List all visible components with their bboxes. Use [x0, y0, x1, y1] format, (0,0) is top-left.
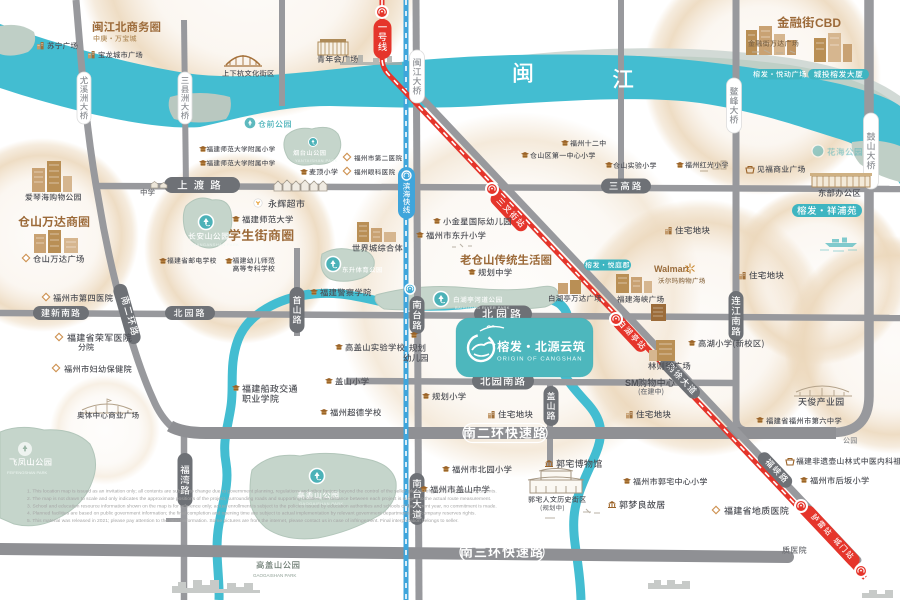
svg-text:SM: SM: [625, 378, 639, 388]
svg-text:BAIHUTING RIVER PARK: BAIHUTING RIVER PARK: [455, 305, 510, 310]
svg-text:2. The map is not drawn to sca: 2. The map is not drawn to scale and onl…: [27, 496, 491, 502]
svg-text:5. This material was released: 5. This material was released in 2021; p…: [27, 518, 459, 524]
svg-text:GAOGAISHAN PARK: GAOGAISHAN PARK: [253, 573, 296, 578]
svg-text:ORIGIN OF CANGSHAN: ORIGIN OF CANGSHAN: [497, 357, 583, 363]
svg-text:FEIFENGSHAN PARK: FEIFENGSHAN PARK: [7, 470, 47, 475]
svg-text:CHANGANSHAN PARK: CHANGANSHAN PARK: [190, 242, 239, 247]
svg-text:Walmart: Walmart: [654, 264, 689, 274]
svg-text:CBD: CBD: [815, 16, 841, 30]
svg-text:YANTAISHAN PARK: YANTAISHAN PARK: [295, 158, 338, 163]
svg-text:1. This location map is issued: 1. This location map is issued as an inv…: [27, 489, 497, 495]
svg-text:3. School and education resour: 3. School and education resource informa…: [27, 503, 497, 509]
svg-text:4. Planned facilities are base: 4. Planned facilities are based on publi…: [27, 511, 476, 517]
